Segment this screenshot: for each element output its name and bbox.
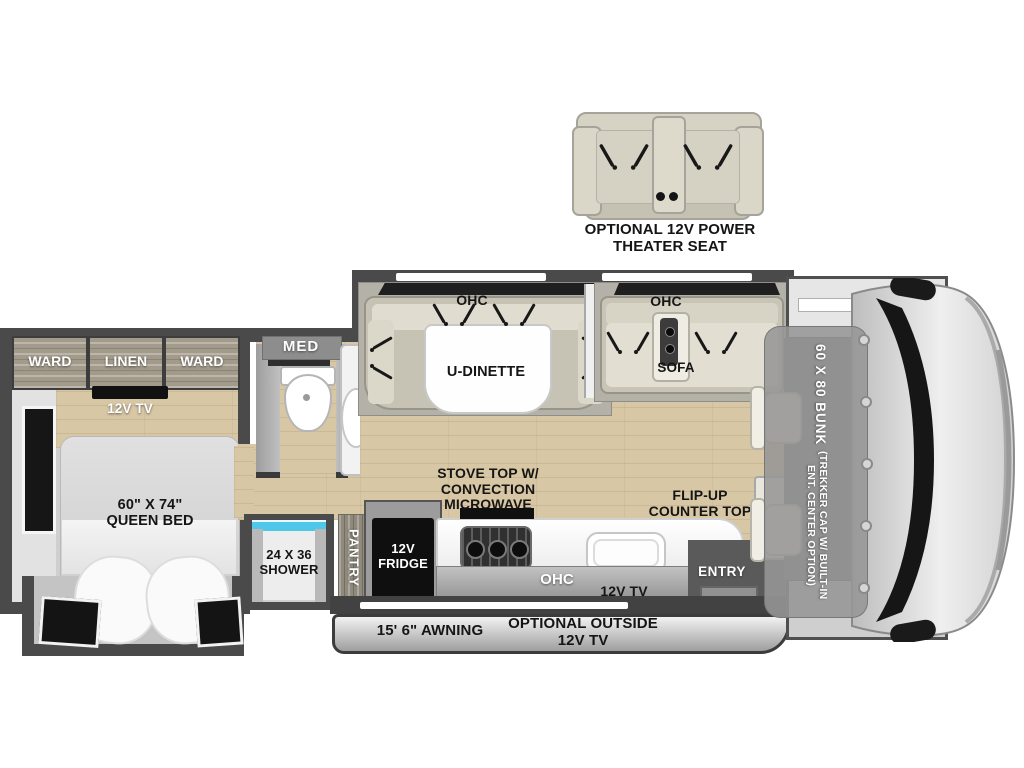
med-label: MED: [262, 339, 340, 356]
bunk-label: 60 X 80 BUNK: [804, 344, 828, 445]
u-dinette-label: U-DINETTE: [426, 364, 546, 380]
kitchen-sink-basin: [593, 539, 659, 567]
seat-stitch-icon: [601, 142, 647, 170]
cupholder-icon: [665, 344, 675, 354]
rivet: [860, 396, 872, 408]
rv-floorplan: OPTIONAL 12V POWER THEATER SEAT WARD LIN…: [0, 0, 1024, 768]
cupholder-icon: [656, 192, 665, 201]
shower-label: 24 X 36 SHOWER: [246, 548, 332, 577]
outside-tv-label: OPTIONAL OUTSIDE 12V TV: [498, 616, 668, 650]
stove-burner: [488, 540, 507, 559]
rivet: [858, 334, 870, 346]
flip-counter-label: FLIP-UP COUNTER TOP: [632, 488, 768, 519]
window: [602, 273, 752, 281]
window: [360, 602, 628, 609]
sofa-label: SOFA: [630, 360, 722, 375]
sofa-console-tray: [660, 318, 678, 366]
seat-stitch-icon: [370, 338, 394, 378]
seat-stitch-icon: [608, 330, 648, 354]
fridge-label: 12V FRIDGE: [372, 542, 434, 571]
window: [22, 406, 56, 534]
theater-seat-label: OPTIONAL 12V POWER THEATER SEAT: [554, 222, 786, 256]
rivet: [861, 458, 873, 470]
rivet: [860, 520, 872, 532]
kitchen-ohc-label: OHC: [522, 572, 592, 589]
bunk-option-label: (TREKKER CAP W/ BUILT-IN ENT. CENTER OPT…: [804, 451, 828, 600]
bedroom-tv-label: 12V TV: [88, 401, 172, 416]
linen-label: LINEN: [88, 354, 164, 370]
microwave-icon: [460, 508, 534, 519]
bunk-text-block: 60 X 80 BUNK (TREKKER CAP W/ BUILT-IN EN…: [804, 344, 828, 600]
dinette-ohc-label: OHC: [412, 293, 532, 309]
theater-seat-illustration: [570, 106, 770, 221]
queen-bed-label: 60" X 74" QUEEN BED: [74, 497, 226, 529]
window: [38, 596, 101, 648]
ward-left-label: WARD: [12, 354, 88, 370]
seat-stitch-icon: [685, 142, 731, 170]
seat-stitch-icon: [696, 330, 736, 354]
window: [396, 273, 546, 281]
bedroom-tv-icon: [92, 386, 168, 399]
awning-label: 15' 6" AWNING: [350, 623, 510, 640]
stove-burner: [510, 540, 529, 559]
sofa-ohc-label: OHC: [606, 294, 726, 310]
window: [194, 596, 243, 647]
entry-label: ENTRY: [682, 564, 762, 579]
truck-cab-front: [846, 278, 1024, 642]
rivet: [858, 582, 870, 594]
toilet-drain: [303, 394, 310, 401]
stove-burner: [466, 540, 485, 559]
cupholder-icon: [665, 327, 675, 337]
bunk-overlay: 60 X 80 BUNK (TREKKER CAP W/ BUILT-IN EN…: [764, 326, 868, 618]
bedroom-doorway: [234, 446, 254, 518]
cupholder-icon: [669, 192, 678, 201]
ward-right-label: WARD: [164, 354, 240, 370]
